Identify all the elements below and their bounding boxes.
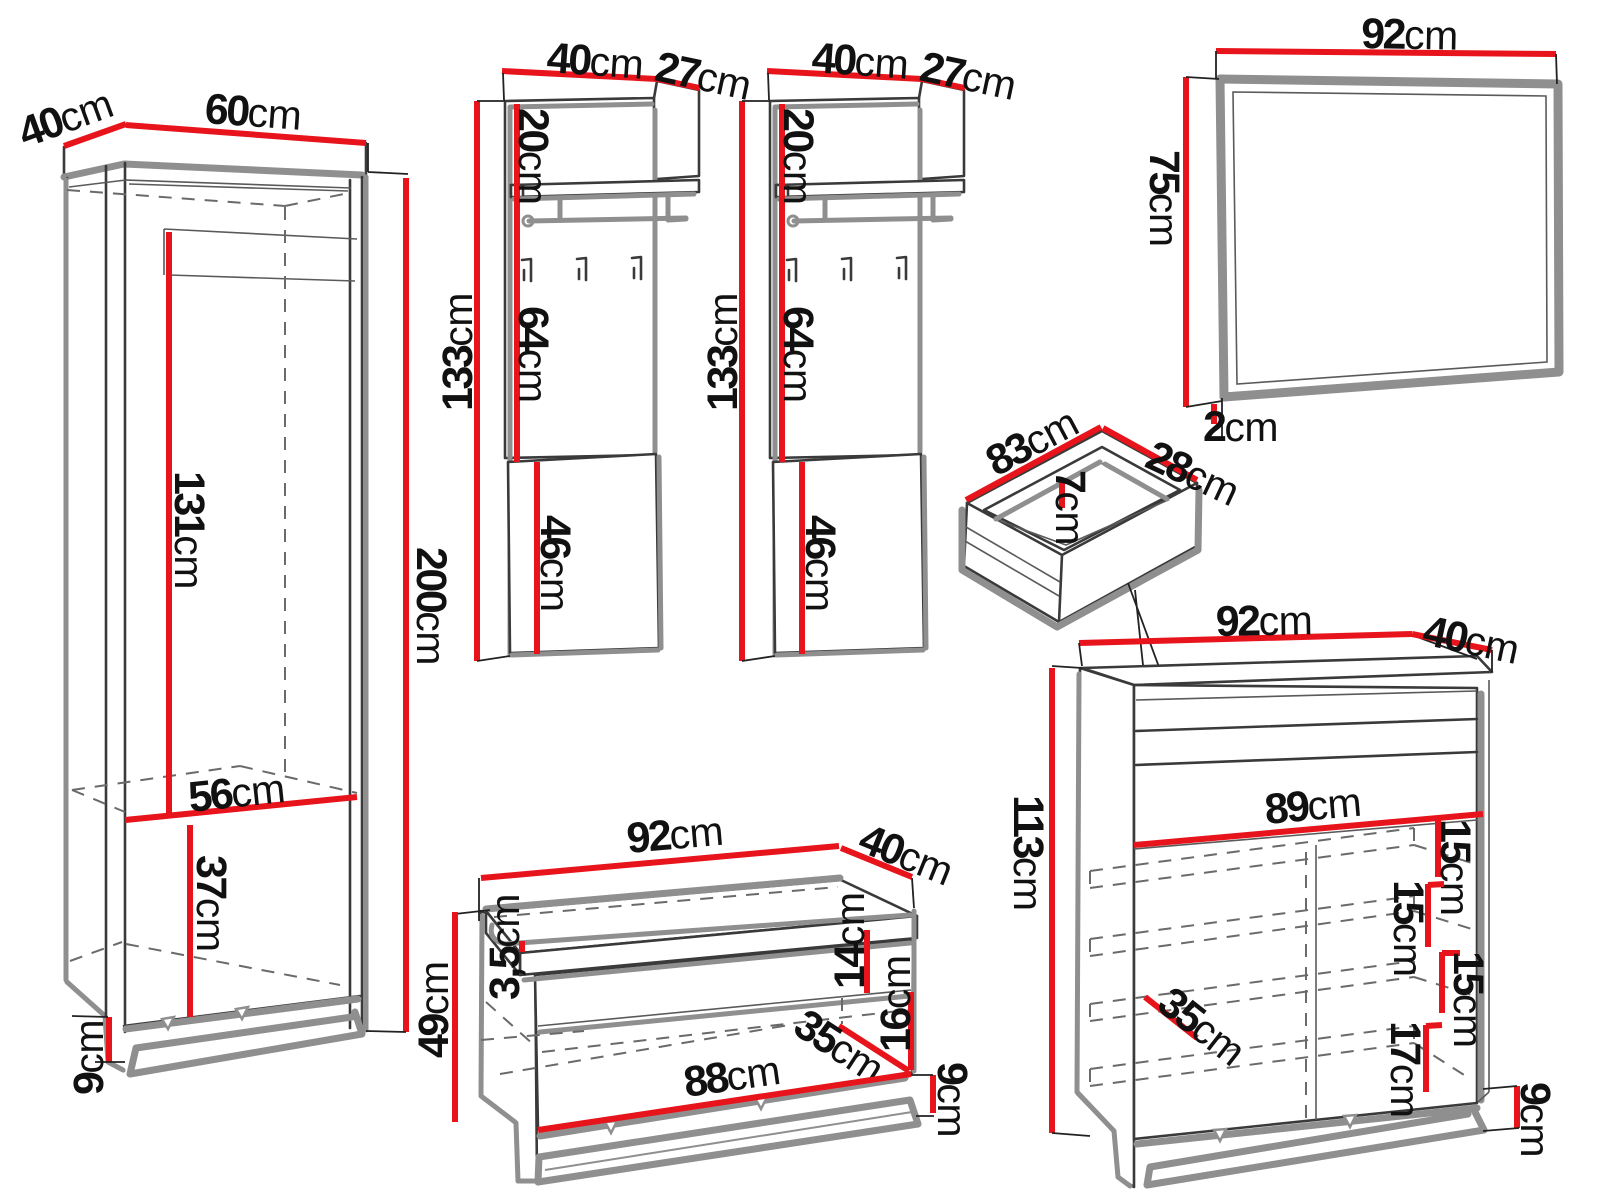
svg-text:133cm: 133cm (434, 293, 482, 411)
svg-text:46cm: 46cm (531, 515, 579, 612)
svg-text:7cm: 7cm (1046, 470, 1094, 545)
svg-text:133cm: 133cm (699, 293, 747, 411)
svg-text:46cm: 46cm (796, 515, 844, 612)
svg-text:20cm: 20cm (774, 108, 822, 205)
svg-text:37cm: 37cm (187, 855, 235, 952)
svg-text:64cm: 64cm (774, 306, 822, 403)
svg-text:2cm: 2cm (1203, 403, 1278, 451)
svg-text:20cm: 20cm (509, 108, 557, 205)
svg-text:15cm: 15cm (1444, 951, 1492, 1048)
svg-text:9cm: 9cm (65, 1020, 113, 1095)
svg-text:16cm: 16cm (872, 956, 920, 1053)
svg-text:113cm: 113cm (1004, 795, 1052, 911)
svg-text:92cm: 92cm (1215, 596, 1312, 646)
svg-text:40cm: 40cm (810, 34, 910, 89)
svg-text:75cm: 75cm (1140, 150, 1188, 247)
svg-text:92cm: 92cm (1361, 10, 1458, 60)
svg-text:64cm: 64cm (509, 306, 557, 403)
svg-text:3,5cm: 3,5cm (481, 894, 529, 1000)
svg-text:89cm: 89cm (1263, 778, 1363, 834)
svg-text:17cm: 17cm (1381, 1021, 1429, 1118)
svg-text:60cm: 60cm (203, 85, 303, 140)
svg-text:15cm: 15cm (1384, 880, 1432, 977)
svg-text:49cm: 49cm (410, 962, 458, 1059)
svg-text:9cm: 9cm (1511, 1082, 1559, 1157)
svg-text:92cm: 92cm (625, 807, 725, 863)
svg-text:9cm: 9cm (928, 1062, 976, 1137)
svg-text:131cm: 131cm (165, 471, 213, 589)
svg-text:14cm: 14cm (826, 893, 874, 990)
svg-text:200cm: 200cm (407, 547, 455, 665)
svg-text:40cm: 40cm (545, 34, 645, 89)
svg-text:15cm: 15cm (1431, 819, 1479, 916)
